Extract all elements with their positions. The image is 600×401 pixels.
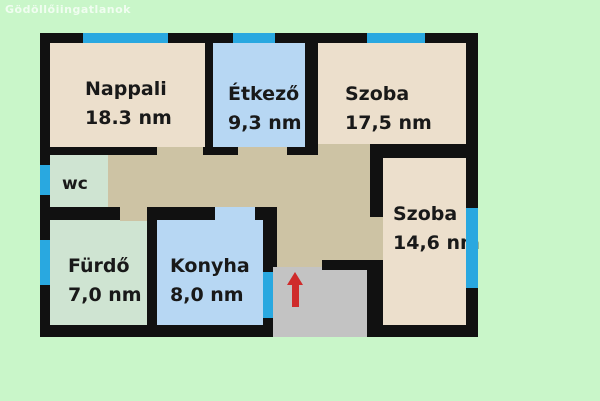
room-label: Szoba 17,5 nm <box>345 80 432 139</box>
hallway-opening-szoba <box>318 144 370 156</box>
floorplan: Nappali 18.3 nm Étkező 9,3 nm Szoba 17,5… <box>40 33 478 337</box>
room-name: Konyha <box>170 255 250 277</box>
room-name: Nappali <box>85 78 167 100</box>
room-label: Fürdő 7,0 nm <box>68 252 142 311</box>
room-wc: wc <box>50 155 108 207</box>
room-area: 18.3 nm <box>85 104 172 133</box>
room-label: Nappali 18.3 nm <box>85 75 172 134</box>
door-entry <box>263 272 273 318</box>
door-szoba-14 <box>370 217 383 260</box>
room-furdo: Fürdő 7,0 nm <box>50 220 147 325</box>
room-label: Konyha 8,0 nm <box>170 252 250 311</box>
window-szoba-17 <box>367 33 425 43</box>
room-area: 9,3 nm <box>228 109 302 138</box>
room-name: Szoba <box>345 83 409 105</box>
room-name: Fürdő <box>68 255 130 277</box>
room-etkezo: Étkező 9,3 nm <box>213 43 305 147</box>
room-area: 8,0 nm <box>170 281 250 310</box>
room-label: Étkező 9,3 nm <box>228 80 302 139</box>
door-nappali <box>157 147 203 156</box>
room-szoba-14: Szoba 14,6 nm <box>383 158 466 325</box>
window-nappali <box>83 33 168 43</box>
room-label: wc <box>62 171 88 197</box>
window-etkezo <box>233 33 275 43</box>
room-name: wc <box>62 174 88 194</box>
room-area: 17,5 nm <box>345 109 432 138</box>
floorplan-image: Gödöllőiingatlanok Nappali 18.3 nm Étkez… <box>0 0 600 401</box>
room-name: Szoba <box>393 203 457 225</box>
entry-area <box>273 267 367 337</box>
watermark: Gödöllőiingatlanok <box>5 3 131 16</box>
door-etkezo <box>238 147 287 156</box>
hallway-vertical <box>277 207 370 267</box>
room-name: Étkező <box>228 83 299 105</box>
window-furdo <box>40 240 50 285</box>
room-area: 7,0 nm <box>68 281 142 310</box>
window-wc <box>40 165 50 195</box>
hallway <box>108 155 370 207</box>
room-nappali: Nappali 18.3 nm <box>50 43 205 147</box>
room-szoba-17: Szoba 17,5 nm <box>318 43 466 144</box>
door-furdo <box>120 207 147 221</box>
wall-stub <box>322 260 370 270</box>
entrance-arrow-icon <box>287 272 303 310</box>
door-konyha <box>215 207 255 221</box>
window-szoba-14 <box>466 208 478 288</box>
room-konyha: Konyha 8,0 nm <box>157 220 263 325</box>
